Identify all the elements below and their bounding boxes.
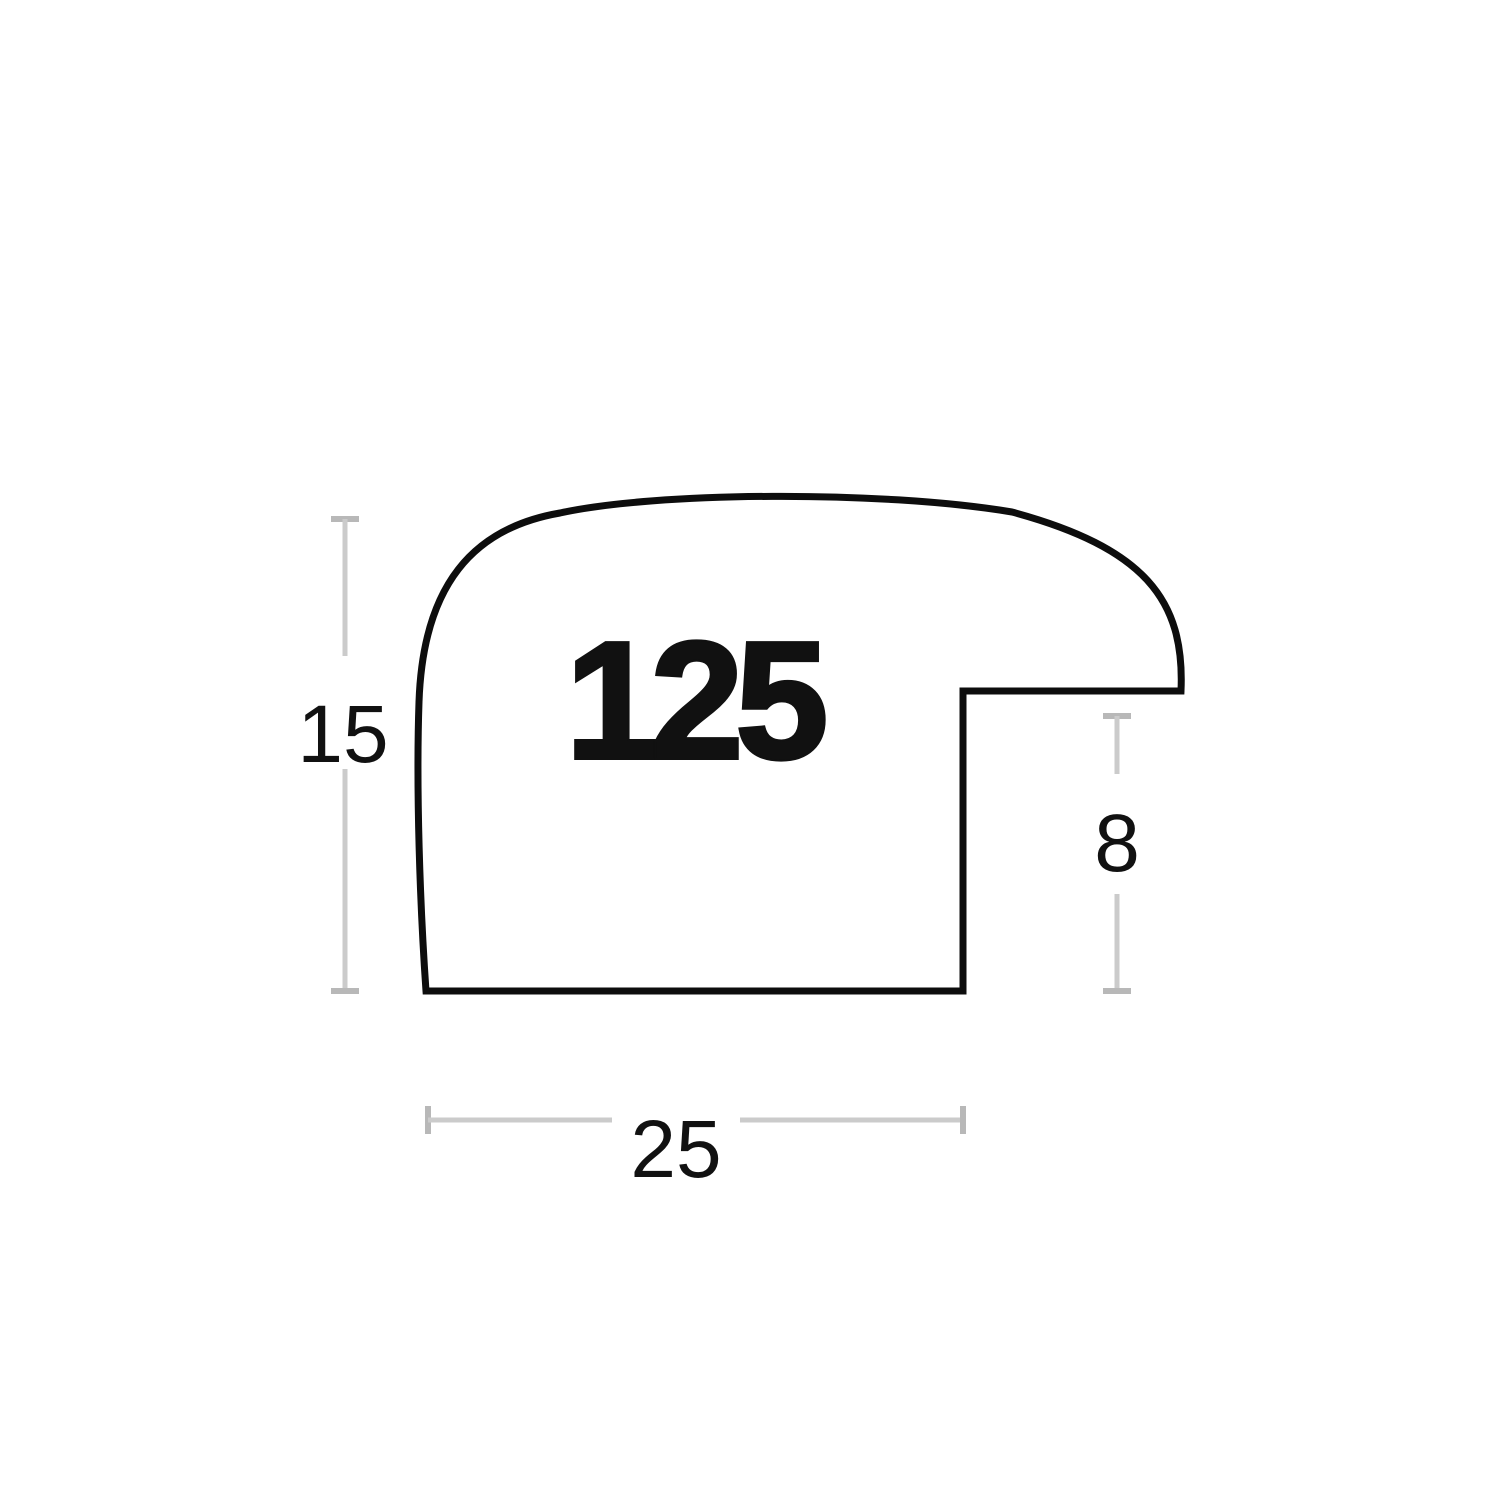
rebate-depth-dimension-label: 8: [1094, 798, 1140, 889]
width-dimension: 25: [428, 1104, 963, 1195]
moulding-profile-diagram: 125 15 8 25: [0, 0, 1500, 1500]
rebate-depth-dimension: 8: [1094, 716, 1140, 991]
diagram-canvas: 125 15 8 25: [0, 0, 1500, 1500]
width-dimension-label: 25: [630, 1104, 721, 1195]
height-dimension-label: 15: [297, 689, 388, 780]
height-dimension: 15: [297, 519, 388, 991]
profile-number-label: 125: [566, 608, 825, 794]
